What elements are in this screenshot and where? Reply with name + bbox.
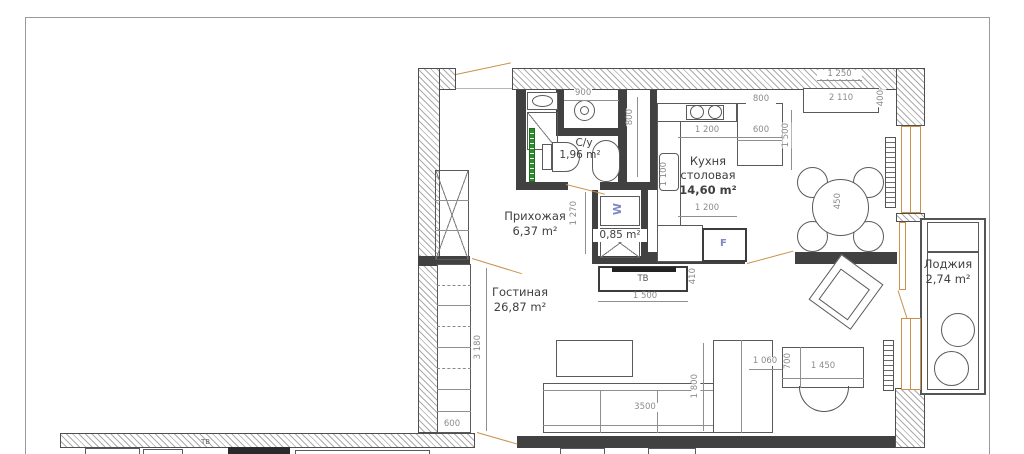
hallway-area: 6,37 m² [495, 225, 575, 239]
dim-line [817, 80, 862, 81]
washer-marker: W [612, 202, 624, 216]
dim-600-living: 600 [439, 420, 465, 429]
desk-divider [800, 347, 801, 388]
wardrobe-living [437, 264, 471, 433]
coffee-table [556, 340, 633, 377]
page-border-left [25, 17, 26, 454]
entry-door-leaf [456, 62, 511, 75]
toilet-tank-icon [542, 144, 552, 170]
sofa-front-line [543, 425, 714, 426]
kitchen-counter-bottom [657, 225, 703, 262]
desk-shelf-line [782, 378, 864, 379]
wall-bath-left [516, 90, 526, 190]
wall-closet-right [641, 190, 648, 260]
loggia-table [941, 313, 975, 347]
dim-800-shaft: 800 [626, 108, 635, 126]
kitchen-cabinet-divider [737, 140, 783, 141]
dim-700: 700 [784, 352, 793, 370]
wall-closet-left [592, 190, 598, 260]
wardrobe-rod-line [437, 285, 471, 286]
page-border-top [25, 17, 990, 18]
dim-1200-bottom: 1 200 [686, 204, 728, 213]
living-area: 26,87 m² [482, 301, 558, 315]
kitchen-name-line2: столовая [670, 169, 746, 183]
dim-line [637, 97, 638, 177]
tv-label: ТВ [630, 275, 656, 284]
dim-line [564, 100, 619, 101]
living-name: Гостиная [482, 286, 558, 300]
dim-1060: 1 060 [748, 357, 782, 366]
floor-plan: W F 450 Лоджия 2,74 m² ТВ [0, 0, 1024, 454]
wall-bath-bottom-left [516, 182, 568, 190]
bottom-door-leaf [477, 432, 518, 445]
loggia-bench [927, 222, 979, 252]
loggia-stool [934, 351, 969, 386]
wall-shaft-right [650, 90, 657, 190]
dim-line [703, 343, 704, 431]
bathroom-area: 1,96 m² [552, 149, 608, 162]
dim-table-450: 450 [834, 192, 843, 210]
wardrobe-hallway-shelf [435, 230, 469, 231]
laundry-area: 0,85 m² [593, 229, 647, 242]
kitchen-area: 14,60 m² [673, 184, 743, 198]
loggia-area: 2,74 m² [916, 273, 980, 287]
lower-unit-furniture [560, 448, 605, 454]
lower-unit-tv-label: ТВ [200, 439, 211, 447]
desk-chair [799, 386, 849, 412]
dim-1500-kitchen: 1 500 [782, 122, 791, 148]
armchair-seat [819, 268, 870, 320]
washbasin-bowl-icon [532, 95, 553, 107]
balcony-door-frame [899, 222, 906, 290]
dim-line [678, 137, 737, 138]
dim-1250: 1 250 [817, 70, 862, 79]
lower-unit-furniture [295, 450, 430, 454]
dim-line [737, 137, 783, 138]
dim-line [749, 369, 782, 370]
dim-1200-top: 1 200 [686, 126, 728, 135]
wall-bottom-corner-block [895, 388, 925, 448]
dim-3180: 3 180 [474, 334, 483, 360]
lower-unit-furniture [648, 448, 696, 454]
window-kitchen [901, 126, 921, 213]
sofa-chaise-divider [741, 340, 742, 433]
dim-400: 400 [877, 89, 886, 107]
tv-screen-bar [612, 267, 676, 272]
dim-900: 900 [574, 89, 592, 98]
dim-800-cab: 800 [746, 95, 776, 104]
wall-shaft-bottom [627, 182, 657, 190]
wall-bottom-left [60, 433, 475, 448]
sofa-divider [600, 390, 601, 433]
armchair [809, 254, 884, 330]
entry-door-threshold [456, 88, 512, 89]
wardrobe-rod-line [437, 368, 471, 369]
dim-line [678, 216, 737, 217]
stove-burner-icon [708, 105, 722, 119]
dim-line [585, 192, 586, 254]
dim-410: 410 [689, 267, 698, 285]
fridge-marker: F [719, 238, 728, 249]
dim-1800: 1 800 [691, 373, 700, 399]
kitchen-name-line1: Кухня [678, 155, 738, 169]
lower-unit-furniture [85, 448, 140, 454]
radiator-living [883, 340, 894, 391]
loggia-name: Лоджия [916, 258, 980, 272]
page-border-right [989, 17, 990, 454]
stove-burner-icon [690, 105, 704, 119]
wall-top-right-block [896, 68, 925, 126]
towel-rail-icon [529, 128, 535, 182]
wall-bottom-right [517, 436, 897, 448]
dim-3500: 3500 [627, 403, 663, 412]
wardrobe-rod-line [437, 326, 471, 327]
bathroom-name: С/у [568, 137, 600, 150]
washing-machine-drum-icon [580, 106, 589, 115]
window-living-mullion [910, 318, 911, 390]
wardrobe-hallway-shelf [435, 200, 469, 201]
radiator-kitchen [885, 137, 896, 208]
sofa-back-line [543, 390, 714, 391]
wardrobe-hallway [435, 170, 469, 260]
dim-1100-sink: 1 100 [660, 161, 669, 187]
dim-600-top: 600 [741, 126, 781, 135]
window-kitchen-mullion [910, 126, 911, 213]
wardrobe-living-shelf [437, 411, 471, 412]
hall-living-door-leaf [472, 258, 522, 274]
wall-bath-bottom-right [600, 182, 627, 190]
dim-2110: 2 110 [821, 94, 861, 103]
lower-unit-tv-bar [228, 447, 290, 454]
dim-1500-tv: 1 500 [625, 292, 665, 301]
dim-1450: 1 450 [804, 362, 842, 371]
lower-unit-furniture [143, 449, 183, 454]
kitchen-living-door-leaf [747, 251, 794, 264]
wardrobe-living-shelf [437, 389, 471, 390]
wardrobe-living-shelf [437, 305, 471, 306]
window-living [901, 318, 921, 390]
wardrobe-living-shelf [437, 347, 471, 348]
wall-washer-niche-h [556, 128, 627, 136]
sofa-chaise [713, 340, 773, 433]
wall-bath-right [618, 90, 627, 190]
hallway-name: Прихожая [495, 210, 575, 224]
